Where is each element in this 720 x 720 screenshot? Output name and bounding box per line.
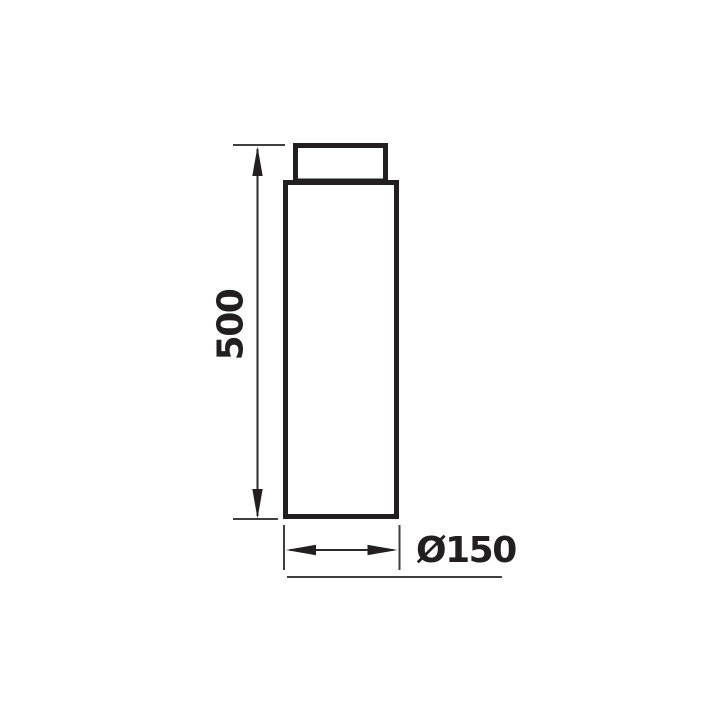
height-dimension-label: 500 xyxy=(211,289,252,360)
arrow-down-icon xyxy=(252,489,262,519)
technical-drawing-page: 500 Ø150 xyxy=(0,0,720,720)
diameter-dimension-label: Ø150 xyxy=(416,530,516,571)
arrow-up-icon xyxy=(252,147,262,177)
pipe-spigot-outline xyxy=(296,146,386,182)
arrow-left-icon xyxy=(286,545,316,555)
pipe-body-outline xyxy=(286,183,397,517)
pipe-technical-drawing: 500 Ø150 xyxy=(0,0,720,720)
arrow-right-icon xyxy=(368,545,398,555)
